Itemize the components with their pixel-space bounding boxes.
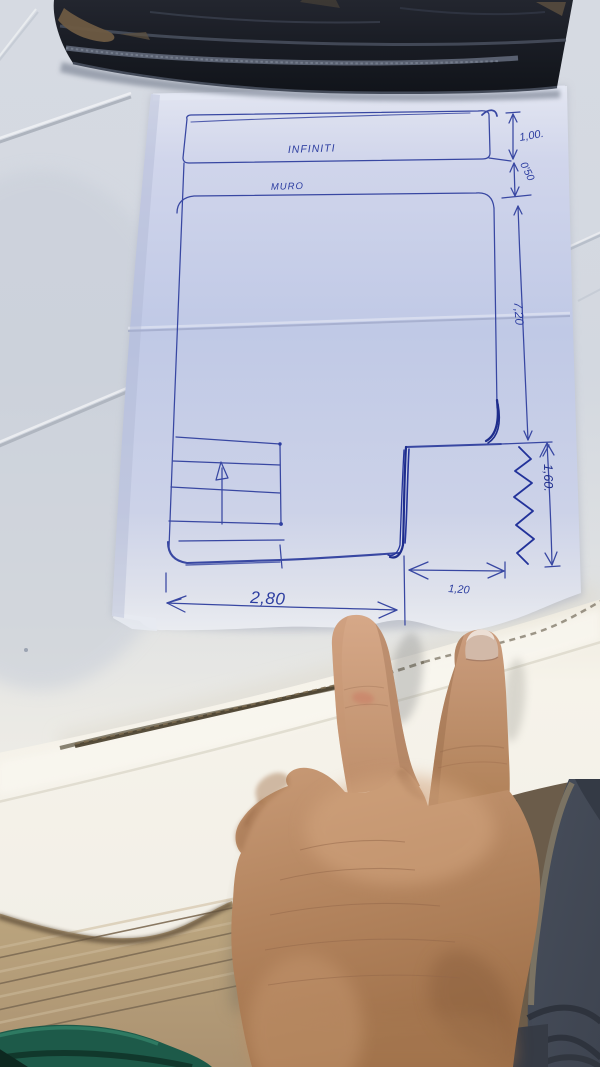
- svg-text:1,20: 1,20: [448, 583, 471, 597]
- svg-text:2,80: 2,80: [249, 588, 286, 609]
- svg-text:7,20: 7,20: [511, 301, 527, 326]
- svg-text:1,60.: 1,60.: [541, 464, 555, 492]
- svg-text:MURO: MURO: [271, 181, 304, 193]
- svg-text:INFINITI: INFINITI: [288, 142, 336, 156]
